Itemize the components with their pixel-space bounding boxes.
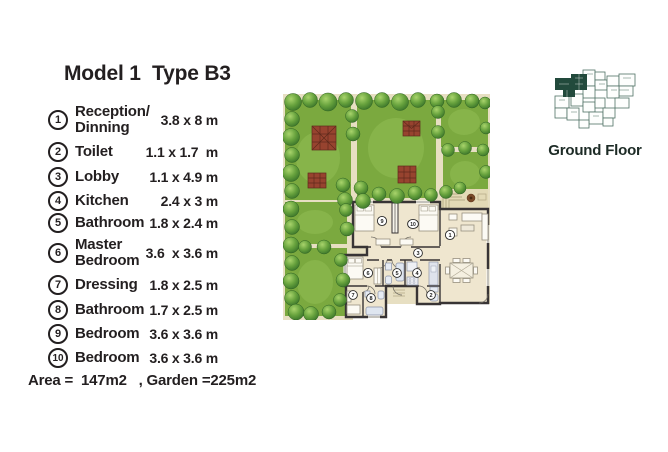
room-label: Bathroom: [75, 302, 144, 318]
room-number-badge: 7: [48, 275, 68, 295]
plan-room-number-9: 9: [377, 216, 386, 225]
svg-text:7: 7: [351, 293, 354, 299]
ground-floor-label: Ground Floor: [538, 142, 652, 159]
room-label: Bathroom: [75, 215, 144, 231]
room-label: Reception/Dinning: [75, 104, 150, 136]
room-label-line2: Bedroom: [75, 252, 139, 269]
svg-text:9: 9: [380, 219, 383, 225]
room-dimensions: 3.6 x 3.6 m: [149, 350, 218, 366]
legend-item-reception: 1 Reception/Dinning 3.8 x 8 m: [48, 100, 218, 140]
svg-text:8: 8: [369, 296, 372, 302]
room-dimensions: 1.8 x 2.5 m: [149, 277, 218, 293]
legend-item-dressing: 7 Dressing 1.8 x 2.5 m: [48, 274, 218, 296]
room-label: Bedroom: [75, 350, 139, 366]
plan-room-number-10: 10: [408, 219, 419, 228]
room-number-badge: 10: [48, 348, 68, 368]
legend-item-kitchen: 4 Kitchen 2.4 x 3 m: [48, 190, 218, 212]
legend-item-toilet: 2 Toilet 1.1 x 1.7 m: [48, 141, 218, 163]
legend-item-master-bedroom: 6 MasterBedroom 3.6 x 3.6 m: [48, 233, 218, 273]
highlighted-unit: [555, 74, 587, 97]
room-label: Bedroom: [75, 326, 139, 342]
page-title: Model 1 Type B3: [64, 62, 231, 86]
legend-item-bedroom-10: 10 Bedroom 3.6 x 3.6 m: [48, 347, 218, 369]
plan-room-number-5: 5: [393, 269, 402, 278]
room-dimensions: 1.1 x 1.7 m: [146, 144, 218, 160]
room-dimensions: 1.7 x 2.5 m: [149, 302, 218, 318]
svg-text:6: 6: [366, 271, 369, 277]
ground-floor-key-icon: [549, 66, 641, 136]
room-number-badge: 3: [48, 167, 68, 187]
room-number-badge: 6: [48, 243, 68, 263]
room-dimensions: 3.8 x 8 m: [161, 112, 218, 128]
plan-room-number-4: 4: [413, 269, 422, 278]
room-label: Toilet: [75, 144, 113, 160]
room-dimensions: 1.8 x 2.4 m: [149, 215, 218, 231]
legend-item-bathroom-5: 5 Bathroom 1.8 x 2.4 m: [48, 212, 218, 234]
floorplan-sheet: Model 1 Type B3 1 Reception/Dinning 3.8 …: [0, 0, 668, 452]
svg-text:1: 1: [448, 233, 451, 239]
legend-item-bedroom-9: 9 Bedroom 3.6 x 3.6 m: [48, 323, 218, 345]
room-label: MasterBedroom: [75, 237, 139, 269]
room-label: Lobby: [75, 169, 119, 185]
legend-item-bathroom-8: 8 Bathroom 1.7 x 2.5 m: [48, 299, 218, 321]
room-label-line2: Dinning: [75, 119, 129, 136]
room-number-badge: 1: [48, 110, 68, 130]
svg-text:10: 10: [410, 222, 416, 228]
svg-text:5: 5: [395, 271, 398, 277]
room-number-badge: 4: [48, 191, 68, 211]
room-label-line1: Reception/: [75, 103, 150, 120]
plan-room-number-8: 8: [367, 294, 376, 303]
plan-room-number-3: 3: [414, 249, 423, 258]
room-label: Kitchen: [75, 193, 129, 209]
room-dimensions: 1.1 x 4.9 m: [149, 169, 218, 185]
site-plan-illustration: 9 10 1 3 6 5 4 7 8 2: [283, 88, 490, 320]
room-number-badge: 9: [48, 324, 68, 344]
room-dimensions: 3.6 x 3.6 m: [146, 245, 218, 261]
room-number-badge: 2: [48, 142, 68, 162]
legend-item-lobby: 3 Lobby 1.1 x 4.9 m: [48, 166, 218, 188]
room-number-badge: 5: [48, 213, 68, 233]
room-number-badge: 8: [48, 300, 68, 320]
plan-room-number-6: 6: [363, 268, 372, 277]
svg-text:2: 2: [429, 293, 432, 299]
room-dimensions: 3.6 x 3.6 m: [149, 326, 218, 342]
area-summary: Area = 147m2 , Garden =225m2: [28, 372, 256, 389]
room-dimensions: 2.4 x 3 m: [161, 193, 218, 209]
plan-room-number-1: 1: [445, 230, 454, 239]
svg-text:3: 3: [416, 251, 419, 257]
plan-room-number-2: 2: [427, 291, 436, 300]
room-label-line1: Master: [75, 236, 122, 253]
plan-room-number-7: 7: [349, 291, 358, 300]
room-label: Dressing: [75, 277, 138, 293]
